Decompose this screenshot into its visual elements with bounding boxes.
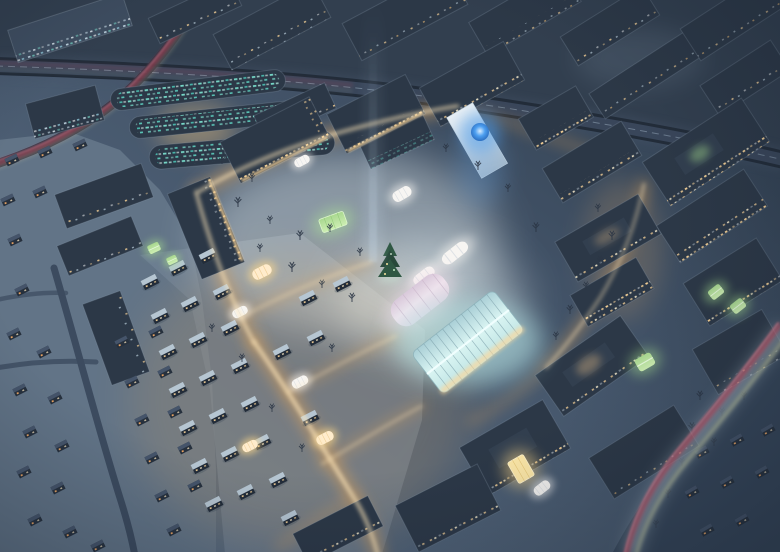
city-night-rendering — [0, 0, 780, 552]
rendering-canvas — [0, 0, 780, 552]
vignette — [0, 0, 780, 552]
